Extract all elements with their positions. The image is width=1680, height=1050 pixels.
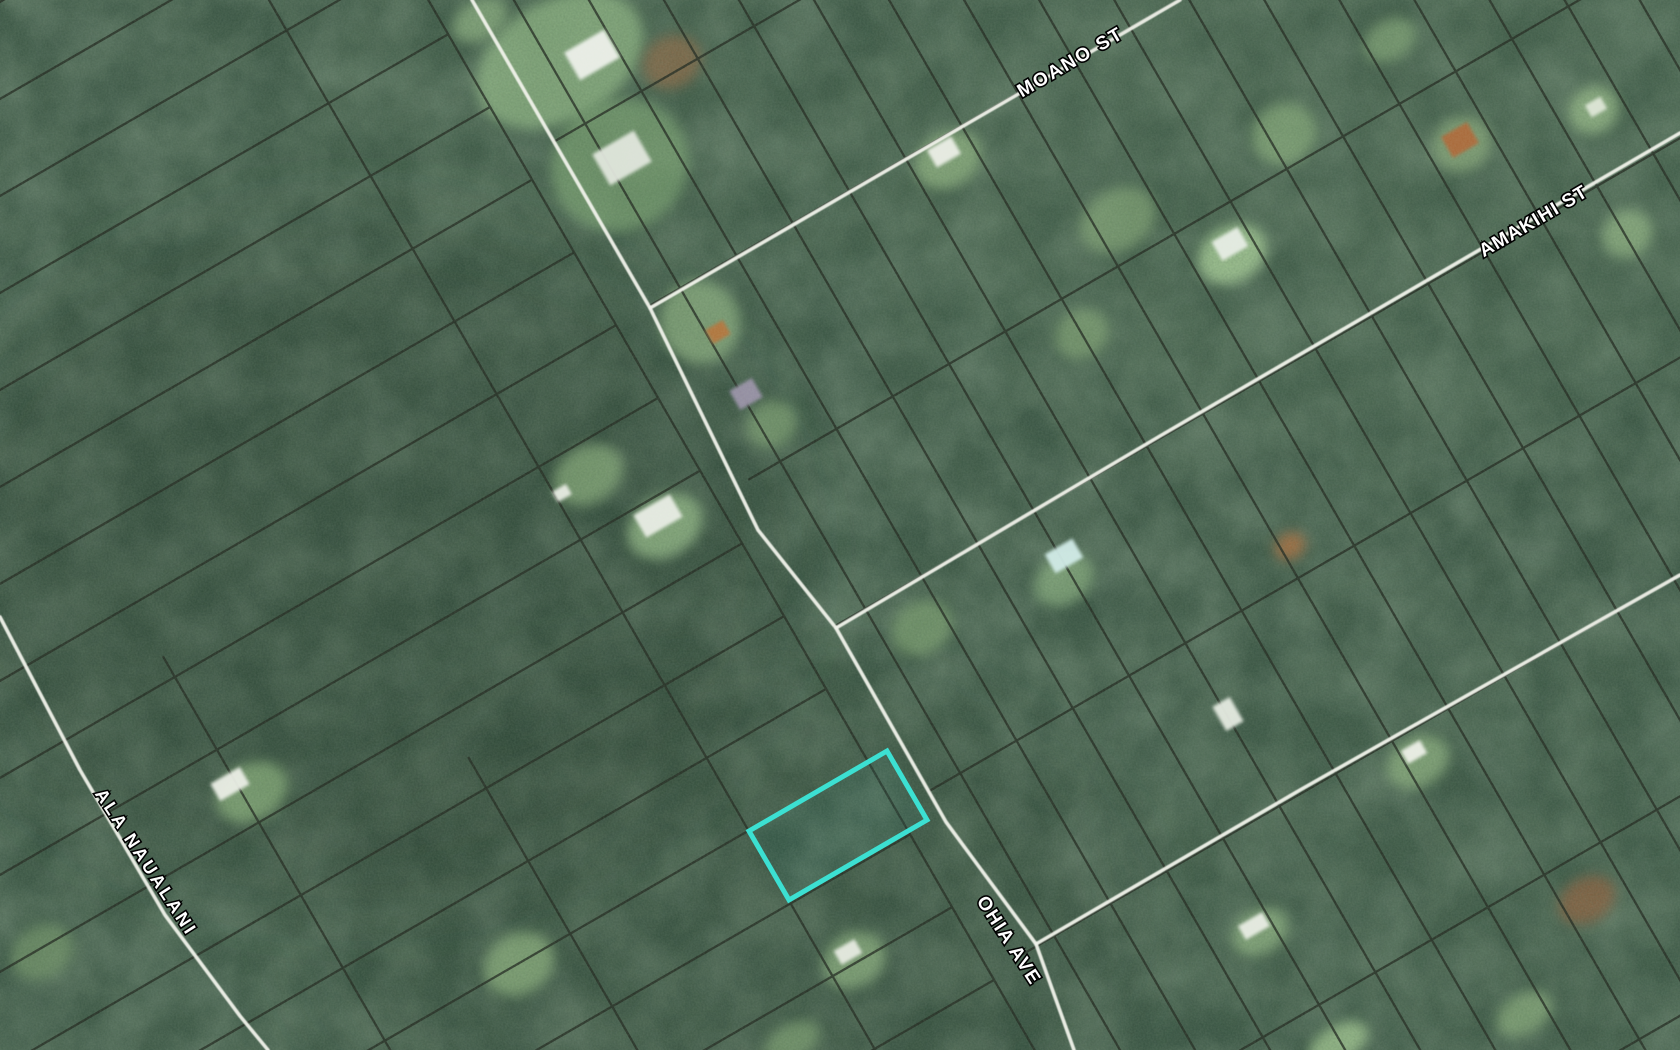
satellite-map-canvas[interactable]: MOANO ST AMAKIHI ST OHIA AVE ALA NAUALAN… [0,0,1680,1050]
map-viewport[interactable]: MOANO ST AMAKIHI ST OHIA AVE ALA NAUALAN… [0,0,1680,1050]
imagery-texture-speckle-light [0,0,1680,1050]
